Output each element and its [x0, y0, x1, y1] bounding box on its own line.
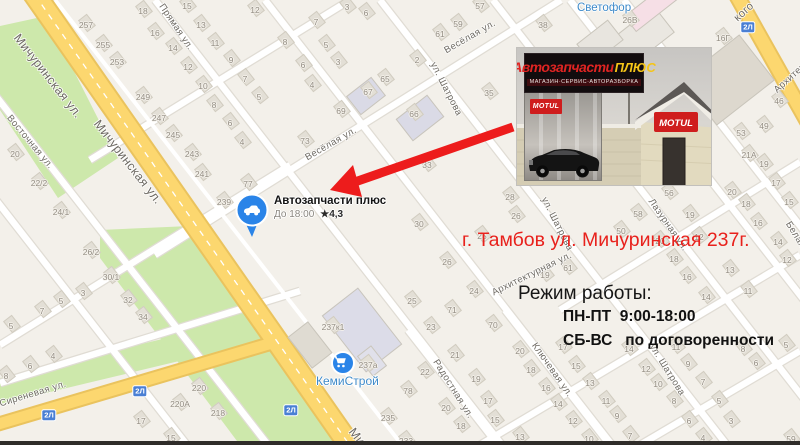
black-car — [526, 144, 602, 178]
motul-wall-text: MOTUL — [659, 118, 693, 129]
schedule-weekdays: ПН-ПТ 9:00-18:00 — [563, 308, 696, 326]
star-icon: ★ — [320, 209, 329, 220]
place-marker[interactable] — [234, 193, 270, 239]
schedule-title: Режим работы: — [518, 283, 652, 305]
bottom-edge-strip — [0, 441, 800, 445]
sign-text-main: Автозапчасти — [516, 59, 614, 75]
marker-title: Автозапчасти плюс — [274, 195, 386, 207]
marker-subtitle: До 18:00★4,3 — [274, 209, 386, 220]
marker-hours: До 18:00 — [274, 209, 314, 220]
sign-text-accent: ПЛЮС — [615, 60, 656, 75]
marker-rating: 4,3 — [329, 209, 343, 220]
motul-banner: MOTUL — [524, 91, 602, 181]
sign-text-sub: МАГАЗИН·СЕРВИС·АВТОРАЗБОРКА — [527, 79, 642, 87]
marker-label[interactable]: Автозапчасти плюс До 18:00★4,3 — [274, 195, 386, 220]
map-screenshot: 2572552532492472452432412391816141210864… — [0, 0, 800, 445]
motul-banner-logo: MOTUL — [530, 99, 562, 114]
schedule-weekend: СБ-ВС по договоренности — [563, 332, 774, 350]
shop-door — [663, 138, 685, 186]
poi-kemistroy[interactable]: КемиСтрой — [316, 374, 379, 388]
poi-svetofor[interactable]: Светофор — [577, 2, 631, 14]
shop-signboard: АвтозапчастиПЛЮС МАГАЗИН·СЕРВИС·АВТОРАЗБ… — [524, 53, 644, 93]
shop-photo: MOTUL MOTUL АвтозапчастиПЛЮС МАГАЗИН·СЕР… — [516, 47, 712, 186]
address-caption: г. Тамбов ул. Мичуринская 237г. — [462, 229, 750, 252]
